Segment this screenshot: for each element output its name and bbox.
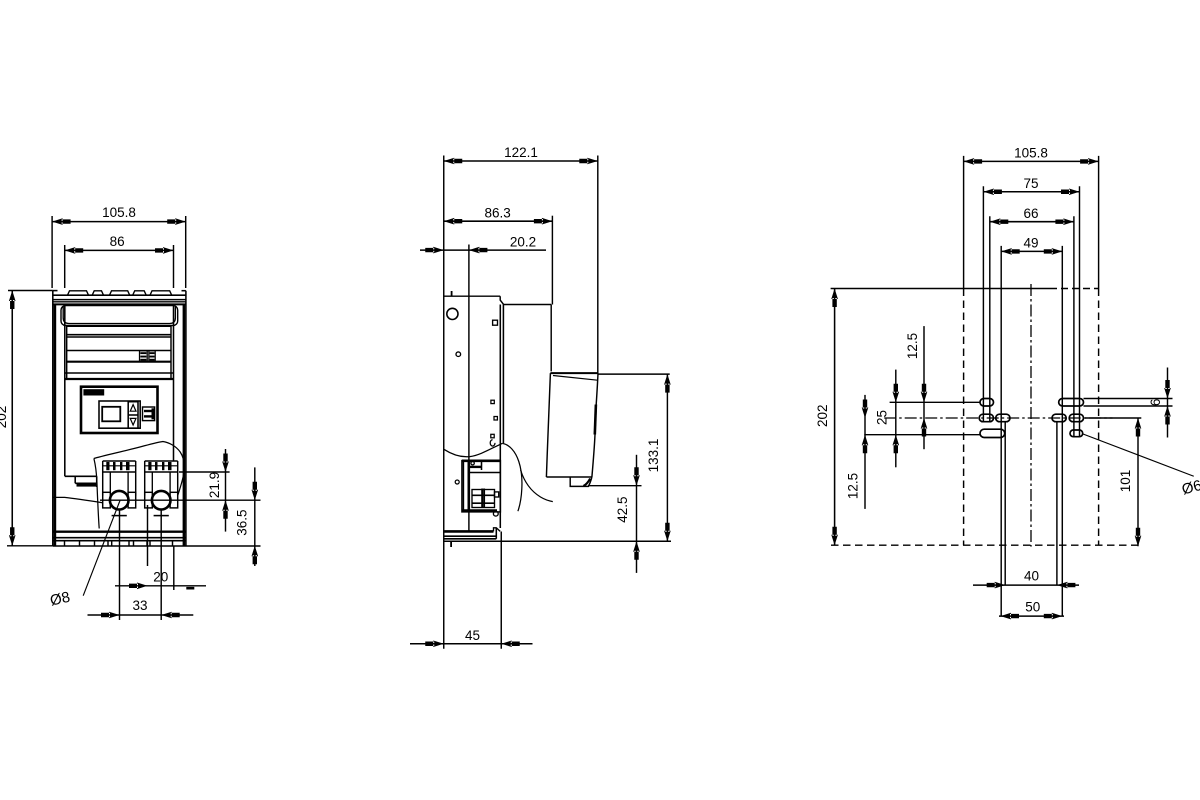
svg-text:86: 86 xyxy=(110,234,125,249)
svg-text:105.8: 105.8 xyxy=(102,205,136,220)
svg-text:202: 202 xyxy=(0,406,9,429)
svg-text:33: 33 xyxy=(132,598,147,613)
svg-text:12.5: 12.5 xyxy=(905,333,920,359)
svg-text:20.2: 20.2 xyxy=(510,234,536,249)
svg-text:122.1: 122.1 xyxy=(504,145,538,160)
svg-text:12.5: 12.5 xyxy=(846,473,861,499)
svg-text:21.9: 21.9 xyxy=(207,472,222,498)
svg-text:75: 75 xyxy=(1023,176,1038,191)
svg-text:101: 101 xyxy=(1118,470,1133,493)
svg-text:105.8: 105.8 xyxy=(1014,146,1048,161)
svg-text:49: 49 xyxy=(1023,236,1038,251)
svg-text:50: 50 xyxy=(1025,599,1040,614)
svg-text:202: 202 xyxy=(815,404,830,427)
svg-text:133.1: 133.1 xyxy=(646,439,661,473)
svg-text:36.5: 36.5 xyxy=(235,509,250,535)
svg-text:45: 45 xyxy=(465,628,480,643)
svg-text:40: 40 xyxy=(1024,568,1039,583)
svg-text:42.5: 42.5 xyxy=(615,496,630,522)
svg-text:86.3: 86.3 xyxy=(484,206,510,221)
svg-text:20: 20 xyxy=(153,569,168,584)
svg-text:25: 25 xyxy=(875,410,890,425)
svg-text:66: 66 xyxy=(1023,206,1038,221)
svg-text:6: 6 xyxy=(1148,399,1163,407)
